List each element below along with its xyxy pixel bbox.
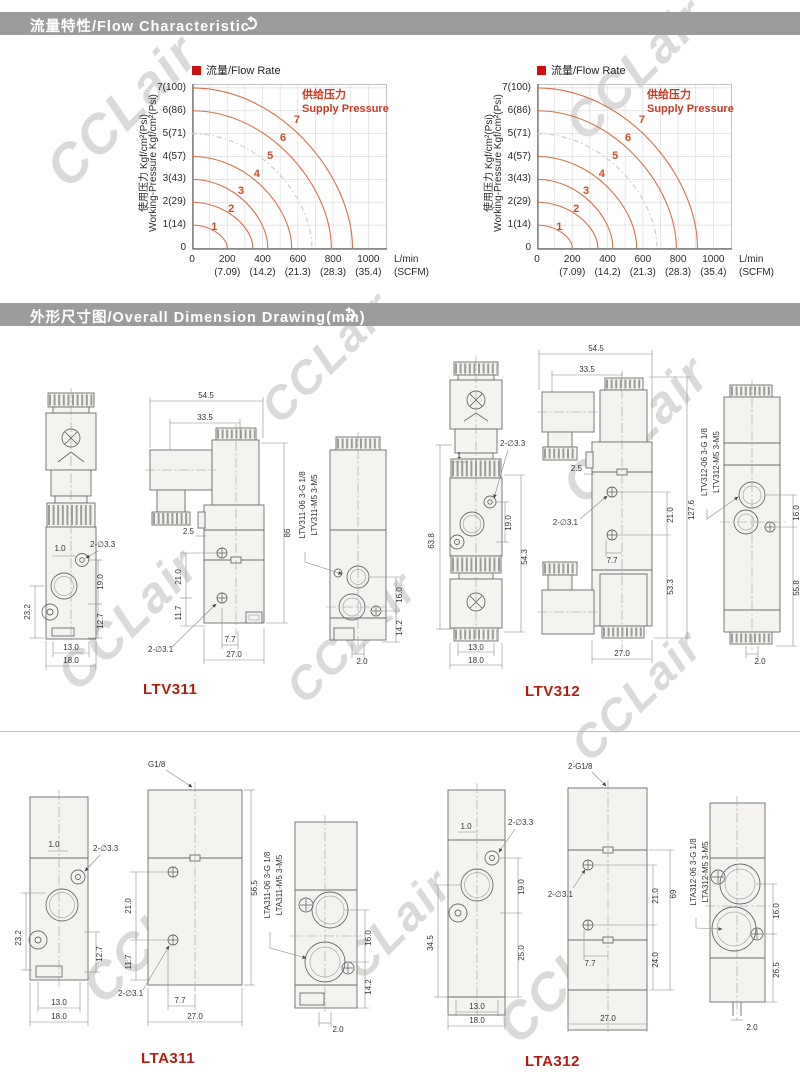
dimension-label: 16.0 [792,505,800,521]
dimension-label: 1.0 [54,544,66,553]
port-label: LTV312-06 3-G 1/8 [700,428,709,496]
dimension-label: 2-∅3.1 [118,989,144,998]
lta312-front-view: 1.0 2-∅3.3 19.0 25.0 34.5 13.0 18.0 [426,783,534,1030]
dimension-label: 13.0 [63,643,79,652]
model-label-ltv311: LTV311 [143,681,197,698]
dimension-label: 54.5 [588,344,604,353]
dimension-label: 2-∅3.3 [90,540,116,549]
dimension-label: 18.0 [469,1016,485,1025]
dimension-label: 33.5 [197,413,213,422]
dimension-label: 24.0 [651,952,660,968]
catalog-page: CCLair CCLair CCLair CCLair CCLair CCLai… [0,0,800,1079]
curve-label-6: 6 [280,132,286,144]
dimension-label: 27.0 [226,650,242,659]
legend-swatch [192,66,201,75]
section-title: 外形尺寸图/Overall Dimension Drawing(mm) [30,306,366,327]
supply-pressure-curve-5 [537,134,657,248]
power-icon [342,307,356,321]
dimension-label: 13.0 [51,998,67,1007]
dimension-label: 11.7 [174,605,183,621]
ltv312-side-view: 54.5 33.5 2.5 2-∅3.1 21.0 127.6 7.7 53.3… [537,344,696,663]
dimension-label: 69 [669,889,678,898]
dimension-label: 2.0 [332,1025,344,1034]
dimension-label: 19.0 [96,574,105,590]
dimension-label: 19.0 [504,515,513,531]
dimension-label: 14.2 [364,979,373,995]
y-axis-title: Working-Pressure Kgf/cm²(Psi) [148,76,161,250]
lta311-front-view: 1.0 2-∅3.3 23.2 12.7 13.0 18.0 [14,790,119,1026]
dimension-label: 13.0 [468,643,484,652]
model-label-ltv312: LTV312 [525,683,580,700]
x-axis-unit2: (SCFM) [394,267,429,278]
dimension-label: G1/8 [148,760,166,769]
supply-pressure-annotation: 供给压力Supply Pressure [302,88,389,116]
dimension-label: 21.0 [124,898,133,914]
port-label: LTA312-M5 3-M5 [701,841,710,903]
dimension-label: 16.0 [772,903,781,919]
x-tick: 0 [517,254,557,265]
chart-legend: 流量/Flow Rate [537,62,626,78]
x-tick: 0 [172,254,212,265]
port-label: LTV312-M5 3-M5 [712,431,721,493]
dimension-label: 2.5 [571,464,583,473]
lta311-side-view: G1/8 21.0 11.7 2-∅3.1 7.7 27.0 56.5 [118,760,259,1026]
lta312-right-view: LTA312-06 3-G 1/8 LTA312-M5 3-M5 16.0 26… [689,796,781,1032]
dimension-label: 27.0 [187,1012,203,1021]
curve-label-4: 4 [254,168,260,180]
x-tick: 200 [207,254,247,265]
lta311-right-view: LTA311-06 3-G 1/8 LTA311-M5 3-M5 16.0 14… [263,815,373,1034]
curve-label-7: 7 [639,114,645,126]
dimension-label: 2.0 [754,657,766,666]
curve-label-6: 6 [625,132,631,144]
dimension-label: 25.0 [517,945,526,961]
x-tick-scfm: (35.4) [689,267,737,278]
dimension-label: 11.7 [124,954,133,970]
dimension-label: 27.0 [600,1014,616,1023]
y-axis-title: Working-Pressure Kgf/cm²(Psi) [493,76,506,250]
x-tick-scfm: (35.4) [344,267,392,278]
model-label-lta312: LTA312 [525,1053,580,1070]
dimension-label: 21.0 [174,569,183,585]
section-divider [0,731,800,732]
curve-label-2: 2 [228,203,234,215]
x-tick: 1000 [348,254,388,265]
dimension-label: 2-∅3.1 [548,890,574,899]
port-label: LTA312-06 3-G 1/8 [689,838,698,906]
dimension-label: 7.7 [606,556,618,565]
dimension-label: 21.0 [666,507,675,523]
dimension-label: 27.0 [614,649,630,658]
x-tick: 800 [313,254,353,265]
dimension-label: 16.0 [364,930,373,946]
dimension-label: 14.2 [395,620,404,636]
power-icon [244,16,258,30]
curve-label-7: 7 [294,114,300,126]
curve-label-4: 4 [599,168,605,180]
dimension-label: 54.3 [520,549,529,565]
dimension-label: 2-G1/8 [568,762,593,771]
dimension-label: 26.5 [772,962,781,978]
x-axis-unit: L/min [394,254,418,265]
y-axis-title: 使用压力 Kgf/cm²(Psi) [135,76,148,250]
port-label: LTA311-06 3-G 1/8 [263,851,272,918]
section-title: 流量特性/Flow Characteristic [30,15,250,36]
dimension-label: 12.7 [95,946,104,962]
dimension-label: 2-∅3.1 [148,645,174,654]
curve-label-3: 3 [238,185,244,197]
port-label: LTV311-06 3-G 1/8 [298,471,307,539]
supply-pressure-curve-5 [192,134,312,248]
x-tick: 200 [552,254,592,265]
dimension-label: 53.3 [666,579,675,595]
x-tick: 1000 [693,254,733,265]
dimension-label: 56.5 [250,880,259,896]
dimension-label: 55.8 [792,580,800,596]
dimension-label: 7.7 [224,635,236,644]
dimension-label: 13.0 [469,1002,485,1011]
ltv312-right-view: LTV312-06 3-G 1/8 LTV312-M5 3-M5 16.0 55… [700,380,800,666]
x-tick: 400 [243,254,283,265]
lta311-dimension-drawing: 1.0 2-∅3.3 23.2 12.7 13.0 18.0 G1/8 21.0 [10,750,395,1045]
x-axis-unit2: (SCFM) [739,267,774,278]
x-tick: 600 [278,254,318,265]
chart-legend: 流量/Flow Rate [192,62,281,78]
legend-label: 流量/Flow Rate [206,65,281,77]
supply-pressure-annotation: 供给压力Supply Pressure [647,88,734,116]
dimension-label: 18.0 [468,656,484,665]
dimension-label: 16.0 [395,587,404,603]
dimension-label: 1.0 [48,840,60,849]
dimension-label: 2-∅3.3 [93,844,119,853]
x-tick: 600 [623,254,663,265]
dimension-label: 63.8 [427,533,436,549]
curve-label-1: 1 [211,221,217,233]
legend-swatch [537,66,546,75]
port-label: LTV311-M5 3-M5 [310,474,319,536]
dimension-label: 7.7 [174,996,186,1005]
dimension-label: 2.0 [746,1023,758,1032]
dimension-label: 2-∅3.3 [500,439,526,448]
dimension-label: 18.0 [51,1012,67,1021]
lta312-dimension-drawing: 1.0 2-∅3.3 19.0 25.0 34.5 13.0 18.0 2- [420,750,800,1045]
dimension-label: 1 [457,451,462,460]
dimension-label: 1.0 [460,822,472,831]
port-label: LTA311-M5 3-M5 [275,854,284,915]
dimension-label: 34.5 [426,935,435,951]
dimension-label: 19.0 [517,879,526,895]
curve-label-5: 5 [267,150,273,162]
legend-label: 流量/Flow Rate [551,65,626,77]
dimension-label: 7.7 [584,959,596,968]
dimension-label: 2.0 [356,657,368,666]
curve-label-3: 3 [583,185,589,197]
dimension-label: 12.7 [96,613,105,629]
dimension-label: 23.2 [14,930,23,946]
dimension-label: 33.5 [579,365,595,374]
dimension-label: 18.0 [63,656,79,665]
dimension-label: 2.5 [183,527,195,536]
section-header-dimensions: 外形尺寸图/Overall Dimension Drawing(mm) [0,303,800,326]
ltv311-front-view: 1.0 2-∅3.3 19.0 12.7 23.2 13.0 18.0 [23,388,116,670]
x-axis-unit: L/min [739,254,763,265]
dimension-label: 23.2 [23,604,32,620]
curve-label-1: 1 [556,221,562,233]
x-tick: 400 [588,254,628,265]
dimension-label: 54.5 [198,391,214,400]
curve-label-5: 5 [612,150,618,162]
curve-label-2: 2 [573,203,579,215]
y-axis-title: 使用压力 Kgf/cm²(Psi) [480,76,493,250]
dimension-label: 2-∅3.3 [508,818,534,827]
ltv311-side-view: 54.5 33.5 2.5 21.0 11.7 2-∅3.1 7.7 27.0 … [145,391,292,664]
x-tick: 800 [658,254,698,265]
ltv312-dimension-drawing: 2-∅3.3 1 19.0 54.3 63.8 13.0 18.0 [420,340,800,675]
dimension-label: 21.0 [651,888,660,904]
dimension-label: 86 [283,528,292,537]
section-header-flow: 流量特性/Flow Characteristic [0,12,800,35]
dimension-label: 127.6 [687,499,696,520]
dimension-label: 2-∅3.1 [553,518,579,527]
ltv312-front-view: 2-∅3.3 1 19.0 54.3 63.8 13.0 18.0 [427,356,529,669]
ltv311-right-view: LTV311-06 3-G 1/8 LTV311-M5 3-M5 16.0 14… [298,432,404,666]
ltv311-dimension-drawing: 1.0 2-∅3.3 19.0 12.7 23.2 13.0 18.0 [20,385,415,685]
model-label-lta311: LTA311 [141,1050,195,1067]
lta312-side-view: 2-G1/8 2-∅3.1 7.7 21.0 69 24.0 27.0 [548,762,678,1034]
